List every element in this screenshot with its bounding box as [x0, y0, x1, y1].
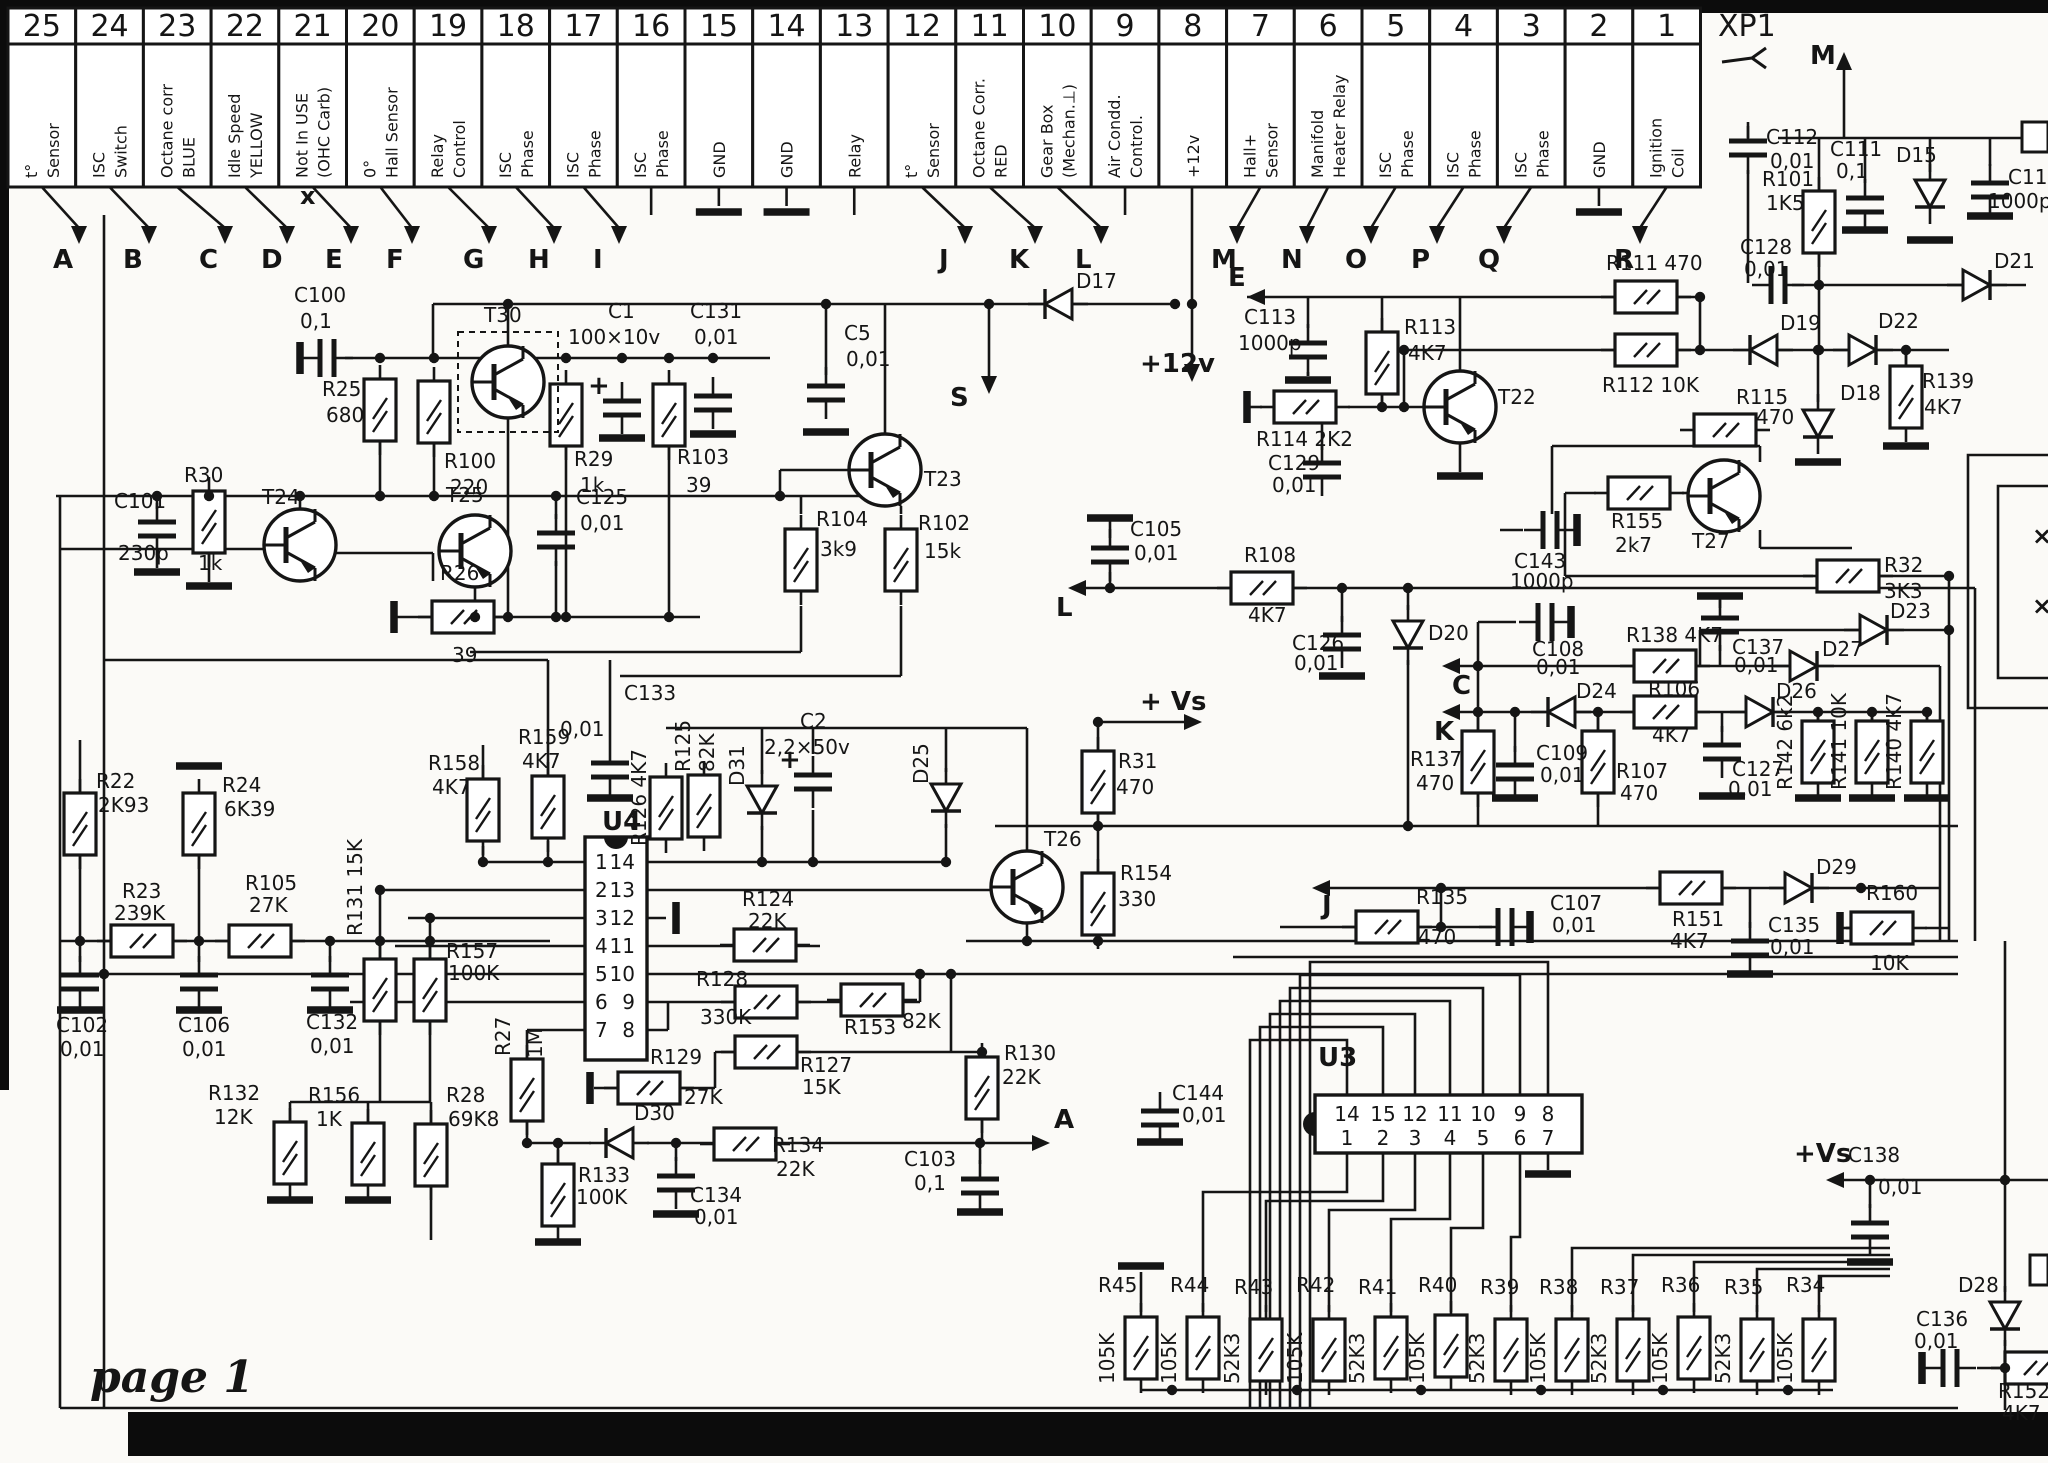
- junction-dot: [204, 491, 214, 501]
- component-label: 100K: [576, 1185, 628, 1209]
- ic-pin-number: 7: [595, 1018, 608, 1042]
- resistor-R127: [721, 1036, 811, 1068]
- pin-letter: A: [53, 245, 73, 275]
- junction-dot: [821, 299, 831, 309]
- pin-label: Coil: [1669, 148, 1688, 178]
- junction-dot: [429, 491, 439, 501]
- component-label: 230p: [118, 541, 169, 565]
- component-label: R38: [1539, 1275, 1578, 1299]
- resistor-body: [1231, 572, 1293, 604]
- ic-pin-number: 5: [1477, 1126, 1490, 1150]
- component-label: 0,01: [1878, 1175, 1923, 1199]
- resistor-body: [1851, 912, 1913, 944]
- pin-number: 9: [1116, 9, 1135, 44]
- component-label: R106: [1648, 677, 1700, 701]
- component-label: R139: [1922, 369, 1974, 393]
- pin-label: Sensor: [924, 123, 943, 178]
- component-label: R43: [1234, 1275, 1273, 1299]
- resistor-body: [432, 601, 494, 633]
- wire: [177, 187, 225, 228]
- wire: [245, 187, 287, 228]
- pin-label: Sensor: [44, 123, 63, 178]
- net-label: + Vs: [1140, 687, 1206, 717]
- component-label: C100: [294, 283, 346, 307]
- pin-number: 15: [700, 9, 738, 44]
- junction-dot: [194, 936, 204, 946]
- component-label: 470: [1416, 771, 1454, 795]
- component-label: R158: [428, 751, 480, 775]
- component-label: 0,01: [1182, 1103, 1227, 1127]
- resistor-R28: [415, 1110, 447, 1200]
- component-label: 0,01: [1134, 541, 1179, 565]
- resistor-R108: [1217, 572, 1307, 604]
- pin-label: Octane Corr.: [970, 78, 989, 178]
- component-label: 1K: [316, 1107, 343, 1131]
- component-label: C128: [1740, 235, 1792, 259]
- resistor-R24: [183, 779, 215, 869]
- capacitor-C135: [1731, 922, 1769, 974]
- diode-D17: [1028, 289, 1088, 319]
- component-label: R113: [1404, 315, 1456, 339]
- resistor-R32: [1803, 560, 1893, 592]
- resistor-R105: [215, 925, 305, 957]
- capacitor-C109: [1496, 746, 1534, 798]
- component-label: 105K: [1405, 1332, 1429, 1384]
- resistor-R38: [1556, 1305, 1588, 1395]
- component-label: 100K: [448, 961, 500, 985]
- component-label: R151: [1672, 907, 1724, 931]
- ic-pin-number: 12: [1402, 1102, 1427, 1126]
- polarity-plus: +: [588, 371, 610, 401]
- junction-dot: [946, 969, 956, 979]
- wire: [990, 187, 1035, 228]
- pin-number: 5: [1386, 9, 1405, 44]
- diode-body: [606, 1128, 633, 1158]
- net-label: C: [1452, 671, 1471, 701]
- component-label: 0,01: [310, 1034, 355, 1058]
- component-label: T26: [1043, 827, 1082, 851]
- diode-body: [1790, 651, 1817, 681]
- component-label: R45: [1098, 1273, 1137, 1297]
- wire: [1057, 187, 1101, 228]
- pin-label: Relay: [428, 134, 447, 178]
- pin-letter: P: [1411, 245, 1430, 275]
- net-label: K: [1434, 717, 1455, 747]
- ic-pin-number: 13: [610, 878, 635, 902]
- connector-pin-14: 14GND: [753, 8, 821, 206]
- component-label: R24: [222, 773, 261, 797]
- pin-number: 13: [835, 9, 873, 44]
- component-label: 22K: [748, 909, 787, 933]
- component-label: C131: [690, 299, 742, 323]
- component-label: R103: [677, 445, 729, 469]
- pin-number: 7: [1251, 9, 1270, 44]
- resistor-R125: [688, 761, 720, 851]
- component-label: C101: [114, 489, 166, 513]
- component-label: R22: [96, 769, 135, 793]
- wire: [922, 187, 965, 228]
- component-label: 2k7: [1615, 533, 1652, 557]
- net-label: L: [1056, 593, 1073, 623]
- pin-number: 12: [903, 9, 941, 44]
- junction-dot: [1022, 936, 1032, 946]
- net-arrow-A: [1032, 1135, 1050, 1151]
- pin-label-cell: [1227, 44, 1295, 187]
- component-label: R157: [446, 939, 498, 963]
- pin-label: t°: [22, 164, 41, 178]
- ic-pin-number: 2: [1377, 1126, 1390, 1150]
- diode-D30: [589, 1128, 649, 1158]
- pin-label-cell: [1091, 44, 1159, 187]
- resistor-R100: [418, 367, 450, 457]
- component-label: 470: [1418, 925, 1456, 949]
- component-label: R39: [1480, 1275, 1519, 1299]
- component-label: 470: [1620, 781, 1658, 805]
- resistor-R160: [1837, 912, 1927, 944]
- junction-dot: [1695, 292, 1705, 302]
- ic-label: U3: [1318, 1043, 1357, 1073]
- pin-label: Relay: [845, 134, 864, 178]
- component-label: D23: [1890, 599, 1931, 623]
- component-label: C115: [2008, 165, 2048, 189]
- pin-label: Manifold: [1308, 110, 1327, 178]
- capacitor-C125: [537, 514, 575, 566]
- component-label: R141 10K: [1827, 692, 1851, 790]
- component-label: R104: [816, 507, 868, 531]
- wire: [110, 187, 149, 228]
- ic-pin-number: 6: [1514, 1126, 1527, 1150]
- junction-dot: [425, 936, 435, 946]
- transistor-T22: [1424, 371, 1496, 443]
- junction-dot: [1403, 821, 1413, 831]
- component-label: D29: [1816, 855, 1857, 879]
- component-label: 1k: [198, 551, 223, 575]
- pin-label: Hall+: [1240, 134, 1259, 178]
- pin-label-cell: [888, 44, 956, 187]
- pin-letter: O: [1345, 245, 1367, 275]
- component-label: C112: [1766, 125, 1818, 149]
- component-label: 2K93: [98, 793, 149, 817]
- ic-pin-number: 1: [595, 850, 608, 874]
- component-label: C129: [1268, 451, 1320, 475]
- resistor-R40: [1435, 1301, 1467, 1391]
- component-label: 27K: [249, 893, 288, 917]
- ic-pin-number: 14: [610, 850, 635, 874]
- component-label: R42: [1296, 1273, 1335, 1297]
- junction-dot: [522, 1138, 532, 1148]
- component-label: 3k9: [820, 537, 857, 561]
- capacitor-C105: [1091, 529, 1129, 581]
- pin-label: Phase: [1533, 130, 1552, 178]
- pin-number: 4: [1454, 9, 1473, 44]
- pin-number: 23: [158, 9, 196, 44]
- component-label: R153: [844, 1015, 896, 1039]
- pin-label: Gear Box: [1037, 105, 1056, 178]
- net-label: M: [1810, 41, 1836, 71]
- resistor-R104: [785, 515, 817, 605]
- resistor-R132: [274, 1108, 306, 1198]
- junction-dot: [708, 353, 718, 363]
- diode-body: [1860, 615, 1887, 645]
- component-label: 0,01: [1294, 651, 1339, 675]
- junction-dot: [1813, 345, 1823, 355]
- component-label: 0,01: [1770, 935, 1815, 959]
- connector-pin-8: 8+12v: [1159, 8, 1227, 187]
- schematic-canvas: 1234567141312111098U41415121110981234567…: [0, 0, 2048, 1463]
- resistor-body: [1615, 334, 1677, 366]
- component-label: 330K: [700, 1005, 752, 1029]
- wire: [1722, 58, 1752, 62]
- resistor-R44: [1187, 1303, 1219, 1393]
- wire: [1504, 187, 1531, 228]
- junction-dot: [429, 353, 439, 363]
- net-label: S: [950, 383, 969, 413]
- pin-number: 20: [361, 9, 399, 44]
- component-label: R134: [772, 1133, 824, 1157]
- component-label: 0,01: [694, 325, 739, 349]
- ic-pin-number: 14: [1334, 1102, 1359, 1126]
- component-label: R138 4K7: [1626, 623, 1723, 647]
- pin-label-cell: [1362, 44, 1430, 187]
- junction-dot: [1922, 707, 1932, 717]
- net-label: +Vs: [1794, 1139, 1851, 1169]
- component-label: C109: [1536, 741, 1588, 765]
- resistor-body: [1608, 477, 1670, 509]
- ic-pin-number: 8: [1542, 1102, 1555, 1126]
- component-label: C2: [800, 709, 827, 733]
- pin-label: Control: [450, 120, 469, 178]
- junction-dot: [808, 857, 818, 867]
- component-label: 4K7: [1408, 341, 1447, 365]
- resistor-R45: [1125, 1303, 1157, 1393]
- diode-body: [1963, 270, 1990, 300]
- component-label: 4K7: [1248, 603, 1287, 627]
- component-label: 1M: [523, 1028, 547, 1058]
- component-label: 52K3: [1587, 1333, 1611, 1384]
- component-label: 105K: [1283, 1332, 1307, 1384]
- ic-pin-number: 15: [1370, 1102, 1395, 1126]
- ic-notch: [1303, 1112, 1315, 1136]
- component-label: 0,1: [914, 1171, 946, 1195]
- pin-label: GND: [1590, 141, 1609, 178]
- junction-dot: [1093, 821, 1103, 831]
- connector-pin-13: 13Relay: [820, 8, 888, 215]
- wire: [1819, 1276, 1890, 1312]
- diode-D31: [747, 770, 777, 830]
- component-label: 0,01: [1914, 1329, 1959, 1353]
- pin-letter: B: [123, 245, 143, 275]
- component-label: 0,01: [580, 511, 625, 535]
- resistor-body: [734, 929, 796, 961]
- net-arrow-+Vs: [1826, 1172, 1844, 1188]
- pin-number: 25: [23, 9, 61, 44]
- component-label: 0,01: [1734, 653, 1779, 677]
- resistor-R155: [1594, 477, 1684, 509]
- resistor-R36: [1678, 1303, 1710, 1393]
- component-label: R129: [650, 1045, 702, 1069]
- pin-letter: Q: [1478, 245, 1500, 275]
- component-label: 100×10v: [568, 325, 660, 349]
- component-label: 0,01: [694, 1205, 739, 1229]
- component-label: R160: [1866, 881, 1918, 905]
- resistor-body: [1817, 560, 1879, 592]
- component-label: R25: [322, 377, 361, 401]
- ic-pin-number: 10: [1470, 1102, 1495, 1126]
- diode-body: [1915, 180, 1945, 207]
- resistor-R131: [364, 945, 396, 1035]
- component-label: R128: [696, 967, 748, 991]
- component-label: R125: [671, 720, 695, 772]
- component-label: 52K3: [1220, 1333, 1244, 1384]
- diode-body: [1045, 289, 1072, 319]
- connector-pin-20: 200°Hall SensorF: [347, 8, 415, 275]
- junction-dot: [503, 612, 513, 622]
- component-label: C125: [576, 485, 628, 509]
- connector-pin-2: 2GND: [1565, 8, 1633, 206]
- diode-body: [931, 784, 961, 811]
- junction-dot: [1377, 402, 1387, 412]
- component-label: D15: [1896, 143, 1937, 167]
- transistor-T30: [458, 332, 558, 432]
- component-label: T25: [445, 483, 484, 507]
- component-label: C5: [844, 321, 871, 345]
- pin-number: 19: [429, 9, 467, 44]
- schematic-page: 1234567141312111098U41415121110981234567…: [0, 0, 2048, 1463]
- resistor-body: [1615, 281, 1677, 313]
- component-label: R29: [574, 447, 613, 471]
- component-label: R28: [446, 1083, 485, 1107]
- component-label: R23: [122, 879, 161, 903]
- capacitor-C136: [1924, 1349, 1976, 1387]
- pin-label: Phase: [1466, 130, 1485, 178]
- pin-label-cell: [143, 44, 211, 187]
- component-label: C107: [1550, 891, 1602, 915]
- capacitor-C111: [1846, 179, 1884, 231]
- junction-dot: [1105, 583, 1115, 593]
- component-label: 52K3: [1465, 1333, 1489, 1384]
- pin-label: Idle Speed: [225, 94, 244, 178]
- component-label: C113: [1244, 305, 1296, 329]
- component-label: R32: [1884, 553, 1923, 577]
- junction-dot: [1093, 717, 1103, 727]
- resistor-R133: [542, 1150, 574, 1240]
- connector-pin-17: 17ISCPhaseI: [550, 8, 619, 275]
- component-label: 0,01: [1272, 473, 1317, 497]
- component-label: R35: [1724, 1275, 1763, 1299]
- component-label: R124: [742, 887, 794, 911]
- wire: [1237, 187, 1260, 228]
- component-label: 470: [1116, 775, 1154, 799]
- junction-dot: [425, 913, 435, 923]
- component-label: 52K3: [1711, 1333, 1735, 1384]
- junction-dot: [617, 353, 627, 363]
- component-label: C103: [904, 1147, 956, 1171]
- component-label: R102: [918, 511, 970, 535]
- component-label: 0,01: [1536, 655, 1581, 679]
- junction-dot: [1658, 1385, 1668, 1395]
- component-label: C1: [608, 299, 635, 323]
- diode-body: [1803, 410, 1833, 437]
- junction-dot: [975, 1138, 985, 1148]
- ic-pin-number: 9: [622, 990, 635, 1014]
- component-label: R40: [1418, 1273, 1457, 1297]
- component-label: 2,2×50v: [764, 735, 850, 759]
- wire: [1752, 48, 1766, 58]
- transistor-T24: [264, 509, 336, 581]
- component-label: 15k: [924, 539, 961, 563]
- junction-dot: [1865, 1175, 1875, 1185]
- junction-dot: [75, 936, 85, 946]
- component-label: R31: [1118, 749, 1157, 773]
- junction-dot: [775, 491, 785, 501]
- component-label: R132: [208, 1081, 260, 1105]
- capacitor-C132: [311, 956, 349, 1008]
- junction-dot: [1695, 345, 1705, 355]
- pin-letter: G: [463, 245, 484, 275]
- pin-label-cell: [1294, 44, 1362, 187]
- connector-pin-12: 12t°SensorJ: [888, 8, 965, 275]
- component-label: 12K: [214, 1105, 253, 1129]
- ic-pin-number: 10: [610, 962, 635, 986]
- pin-label: Octane corr: [157, 84, 176, 178]
- resistor-body: [1356, 911, 1418, 943]
- resistor-R157: [414, 945, 446, 1035]
- component-label: 27K: [684, 1085, 723, 1109]
- component-label: 82K: [902, 1009, 941, 1033]
- junction-dot: [1399, 402, 1409, 412]
- net-label: A: [1054, 1105, 1074, 1135]
- wire: [1968, 455, 2048, 708]
- pin-label: ISC: [631, 152, 650, 178]
- pin-number: 3: [1522, 9, 1541, 44]
- resistor-R126: [650, 763, 682, 853]
- pin-label-cell: [482, 44, 550, 187]
- component-label: T24: [261, 485, 300, 509]
- component-label: R108: [1244, 543, 1296, 567]
- component-label: D26: [1776, 679, 1817, 703]
- component-label: 1K5: [1766, 191, 1805, 215]
- resistor-R39: [1495, 1305, 1527, 1395]
- resistor-R156: [352, 1109, 384, 1199]
- pin-label: (OHC Carb): [315, 87, 334, 178]
- pin-letter: I: [593, 245, 603, 275]
- pin-number: 14: [767, 9, 805, 44]
- diode-D22: [1833, 335, 1893, 365]
- component-label: 105K: [1095, 1332, 1119, 1384]
- component-label: R135: [1416, 885, 1468, 909]
- pin-number: 16: [632, 9, 670, 44]
- resistor-R139: [1890, 352, 1922, 442]
- diode-D19: [1733, 335, 1793, 365]
- component-label: R37: [1600, 1275, 1639, 1299]
- net-label: E: [1228, 263, 1246, 293]
- wire: [380, 187, 412, 228]
- net-arrow-E: [1247, 289, 1265, 305]
- pin-label: GND: [710, 141, 729, 178]
- component-label: R140 4K7: [1882, 693, 1906, 790]
- component-label: 15K: [802, 1075, 841, 1099]
- wire: [1640, 187, 1667, 228]
- component-label: R154: [1120, 861, 1172, 885]
- component-label: R127: [800, 1053, 852, 1077]
- component-label: R131 15K: [343, 838, 367, 936]
- component-label: 82K: [695, 733, 719, 772]
- pin-label: Heater Relay: [1330, 75, 1349, 178]
- resistor-R35: [1741, 1305, 1773, 1395]
- junction-dot: [1944, 571, 1954, 581]
- connector-pin-19: 19RelayControlG: [414, 8, 489, 275]
- diode-D25: [931, 768, 961, 828]
